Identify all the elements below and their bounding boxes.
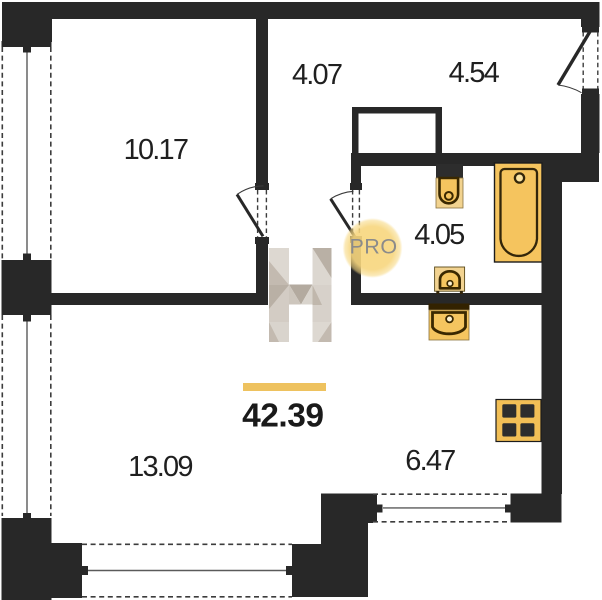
- svg-text:13.09: 13.09: [128, 451, 192, 483]
- svg-text:4.07: 4.07: [292, 59, 342, 91]
- svg-text:10.17: 10.17: [124, 134, 188, 166]
- svg-text:6.47: 6.47: [405, 445, 455, 477]
- svg-text:42.39: 42.39: [242, 398, 323, 435]
- svg-text:4.05: 4.05: [414, 219, 464, 251]
- svg-text:PRO: PRO: [349, 235, 397, 259]
- svg-text:4.54: 4.54: [449, 57, 500, 89]
